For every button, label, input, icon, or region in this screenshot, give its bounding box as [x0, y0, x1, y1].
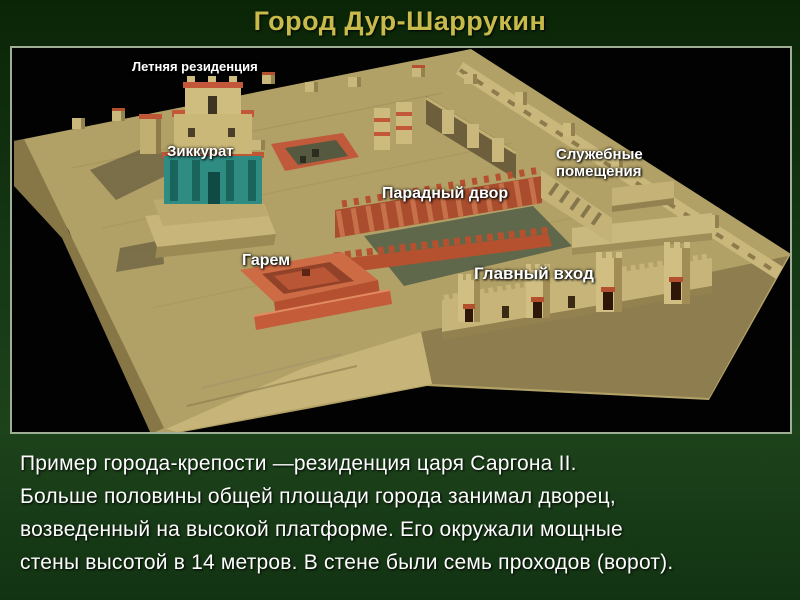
body-line-3: возведенный на высокой платформе. Его ок…: [20, 513, 790, 546]
body-text: Пример города-крепости —резиденция царя …: [20, 447, 790, 579]
body-line-1: Пример города-крепости —резиденция царя …: [20, 447, 790, 480]
slide-title: Город Дур-Шаррукин: [0, 6, 800, 37]
entrance-tower-4: [664, 242, 690, 304]
body-line-4: стены высотой в 14 метров. В стене были …: [20, 546, 790, 579]
label-ziggurat: Зиккурат: [167, 144, 234, 161]
body-line-2: Больше половины общей площади города зан…: [20, 480, 790, 513]
label-summer-residence: Летняя резиденция: [132, 60, 258, 74]
entrance-tower-3: [596, 252, 622, 312]
label-main-entrance: Главный вход: [474, 265, 594, 284]
label-main-court: Парадный двор: [382, 185, 508, 203]
city-3d-render: [12, 48, 790, 432]
summer-residence-tower: [183, 76, 243, 114]
label-service-rooms: Служебные помещения: [556, 147, 656, 180]
slide: Город Дур-Шаррукин: [0, 0, 800, 600]
city-illustration: Летняя резиденция Зиккурат Служебные пом…: [10, 46, 792, 434]
label-harem: Гарем: [242, 252, 290, 270]
